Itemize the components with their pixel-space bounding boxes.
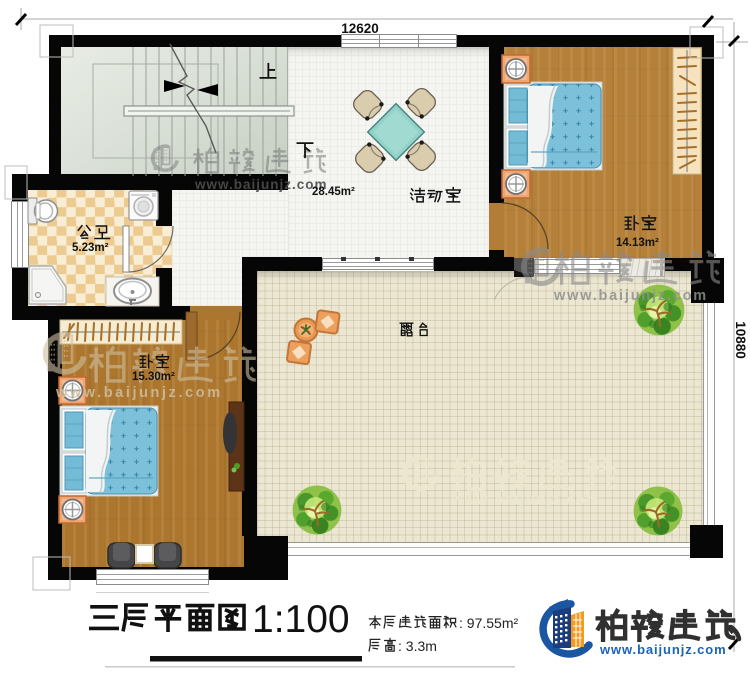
svg-text:12620: 12620 xyxy=(341,21,379,36)
svg-text:www.baijunjz.com: www.baijunjz.com xyxy=(599,642,727,657)
svg-text:14.13m²: 14.13m² xyxy=(616,237,659,249)
svg-text:28.45m²: 28.45m² xyxy=(312,186,355,198)
svg-text:10880: 10880 xyxy=(733,321,748,359)
svg-text:: 97.55m²: : 97.55m² xyxy=(459,615,518,631)
svg-text:www.baijunjz.com: www.baijunjz.com xyxy=(451,492,601,507)
svg-text:: 3.3m: : 3.3m xyxy=(398,638,437,654)
svg-text:1:100: 1:100 xyxy=(252,598,350,641)
svg-text:15.30m²: 15.30m² xyxy=(132,371,175,383)
svg-text:www.baijunjz.com: www.baijunjz.com xyxy=(55,385,223,401)
svg-text:5.23m²: 5.23m² xyxy=(72,242,109,254)
svg-text:www.baijunjz.com: www.baijunjz.com xyxy=(553,288,708,304)
svg-text:www.baijunjz.com: www.baijunjz.com xyxy=(194,177,328,192)
